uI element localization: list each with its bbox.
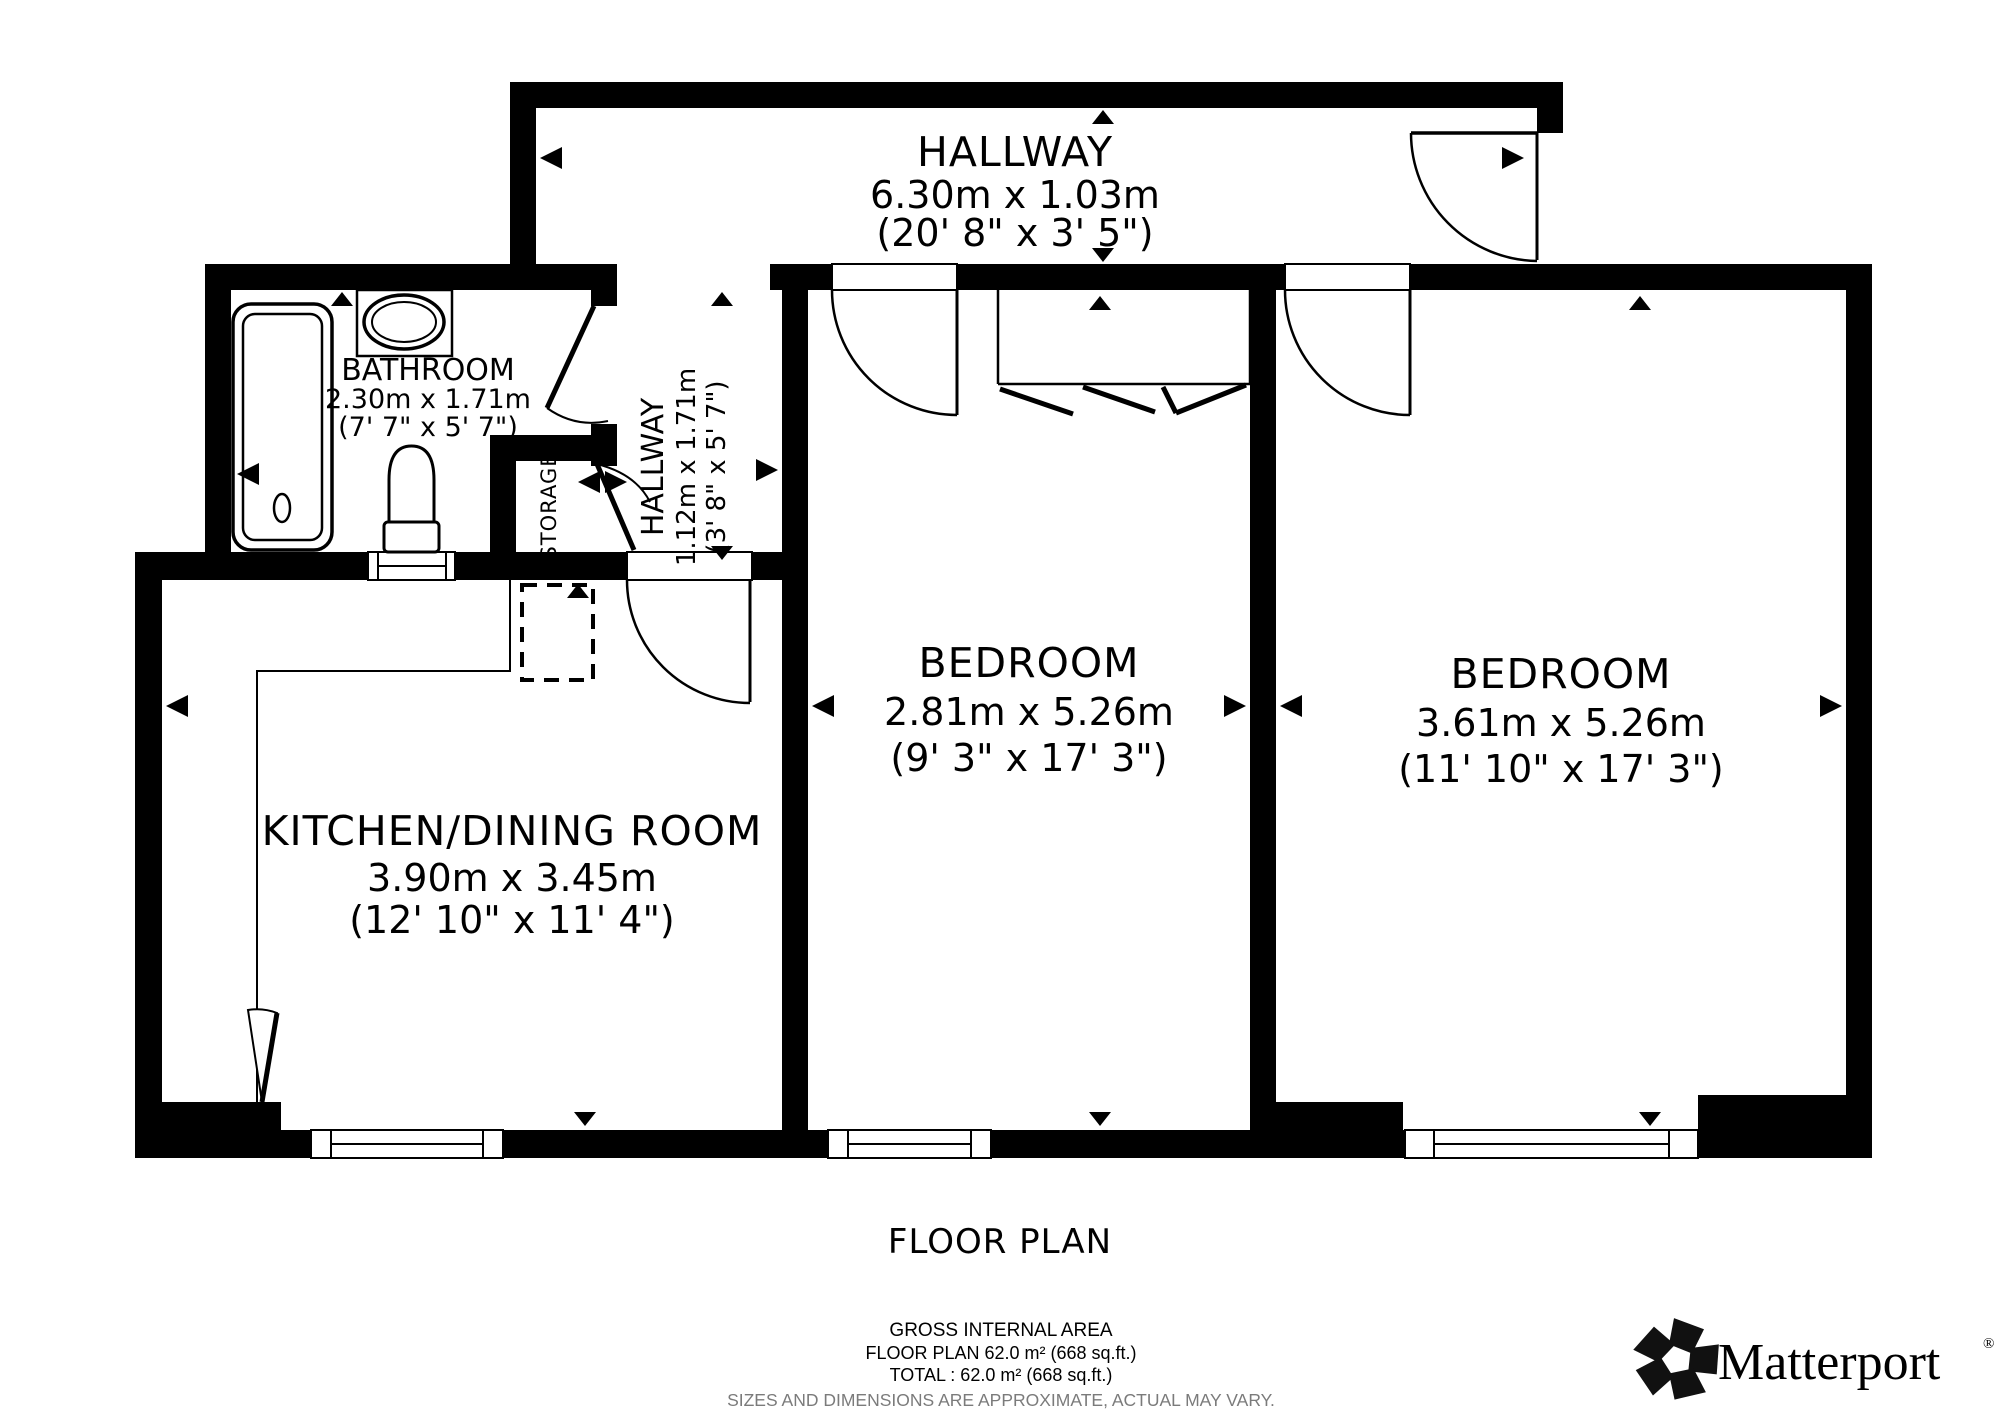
bedroom-middle-metric: 2.81m x 5.26m [884, 690, 1174, 734]
toilet [384, 446, 439, 552]
bedroom-right-label: BEDROOM [1450, 650, 1671, 698]
storage-label: STORAGE [537, 453, 561, 560]
page-title: FLOOR PLAN [888, 1222, 1112, 1262]
floorplan-svg: HALLWAY 6.30m x 1.03m (20' 8" x 3' 5") B… [0, 0, 2000, 1414]
bedroom-middle-label: BEDROOM [918, 639, 1139, 687]
hallway-inner-imperial: (3' 8" x 5' 7") [702, 380, 732, 553]
kitchen-window [311, 1130, 503, 1158]
bathroom-doorway [591, 306, 617, 424]
total-area: TOTAL : 62.0 m² (668 sq.ft.) [890, 1365, 1113, 1385]
kitchen-imperial: (12' 10" x 11' 4") [349, 898, 675, 942]
floorplan-page: HALLWAY 6.30m x 1.03m (20' 8" x 3' 5") B… [0, 0, 2000, 1414]
floor-plan-area: FLOOR PLAN 62.0 m² (668 sq.ft.) [865, 1343, 1136, 1363]
storage-label-group: STORAGE [537, 453, 561, 560]
kitchen-label: KITCHEN/DINING ROOM [262, 807, 763, 855]
bedroom-right-imperial: (11' 10" x 17' 3") [1398, 747, 1724, 791]
bedroom-right-doorway [1285, 264, 1410, 290]
hallway-inner-metric: 1.12m x 1.71m [672, 368, 702, 566]
bedroom-middle-doorway [832, 264, 957, 290]
bathroom-metric: 2.30m x 1.71m [325, 384, 531, 415]
gross-internal-area: GROSS INTERNAL AREA [889, 1320, 1112, 1341]
entrance-opening [1537, 133, 1563, 262]
hallway-top-imperial: (20' 8" x 3' 5") [876, 211, 1153, 255]
hallway-top-label: HALLWAY [917, 128, 1113, 176]
bathroom-label: BATHROOM [341, 353, 515, 388]
matterport-wordmark: Matterport [1718, 1334, 1941, 1391]
bathtub [233, 304, 332, 550]
bedroom-middle-imperial: (9' 3" x 17' 3") [890, 736, 1167, 780]
kitchen-metric: 3.90m x 3.45m [367, 856, 657, 900]
bedroom-right-metric: 3.61m x 5.26m [1416, 701, 1706, 745]
bedroom-right-window [1405, 1130, 1698, 1158]
bedroom-middle-window [828, 1130, 991, 1158]
bathroom-sill-window [368, 552, 455, 580]
sink [357, 290, 452, 356]
hallway-inner-label: HALLWAY [636, 397, 671, 536]
registered-mark: ® [1983, 1336, 1994, 1352]
disclaimer: SIZES AND DIMENSIONS ARE APPROXIMATE, AC… [727, 1390, 1275, 1410]
bathroom-imperial: (7' 7" x 5' 7") [338, 412, 518, 443]
